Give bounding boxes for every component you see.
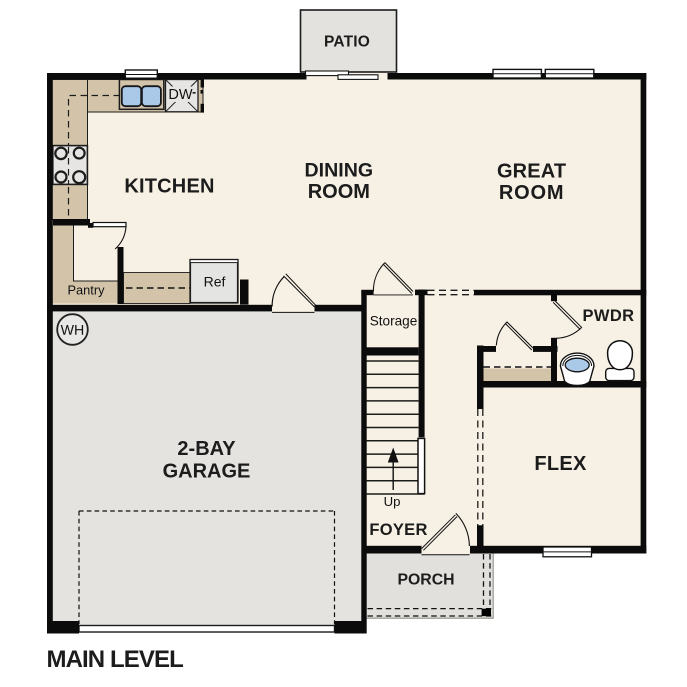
svg-text:DW: DW bbox=[168, 87, 192, 103]
svg-text:GREAT: GREAT bbox=[497, 160, 566, 182]
svg-text:PORCH: PORCH bbox=[397, 571, 454, 588]
svg-text:DINING: DINING bbox=[305, 159, 374, 181]
svg-text:Storage: Storage bbox=[370, 314, 418, 329]
svg-text:MAIN LEVEL: MAIN LEVEL bbox=[47, 646, 184, 673]
svg-text:PATIO: PATIO bbox=[324, 34, 370, 51]
svg-text:ROOM: ROOM bbox=[308, 181, 370, 203]
svg-text:ROOM: ROOM bbox=[499, 182, 564, 204]
svg-text:Ref: Ref bbox=[204, 273, 226, 289]
svg-text:KITCHEN: KITCHEN bbox=[124, 175, 214, 197]
svg-text:PWDR: PWDR bbox=[582, 307, 634, 325]
svg-text:Pantry: Pantry bbox=[68, 283, 106, 298]
svg-text:Up: Up bbox=[384, 494, 401, 509]
svg-text:FLEX: FLEX bbox=[534, 453, 587, 475]
svg-text:WH: WH bbox=[61, 323, 85, 339]
svg-text:2-BAY: 2-BAY bbox=[177, 438, 236, 460]
svg-text:FOYER: FOYER bbox=[369, 521, 427, 539]
svg-text:GARAGE: GARAGE bbox=[163, 461, 251, 483]
